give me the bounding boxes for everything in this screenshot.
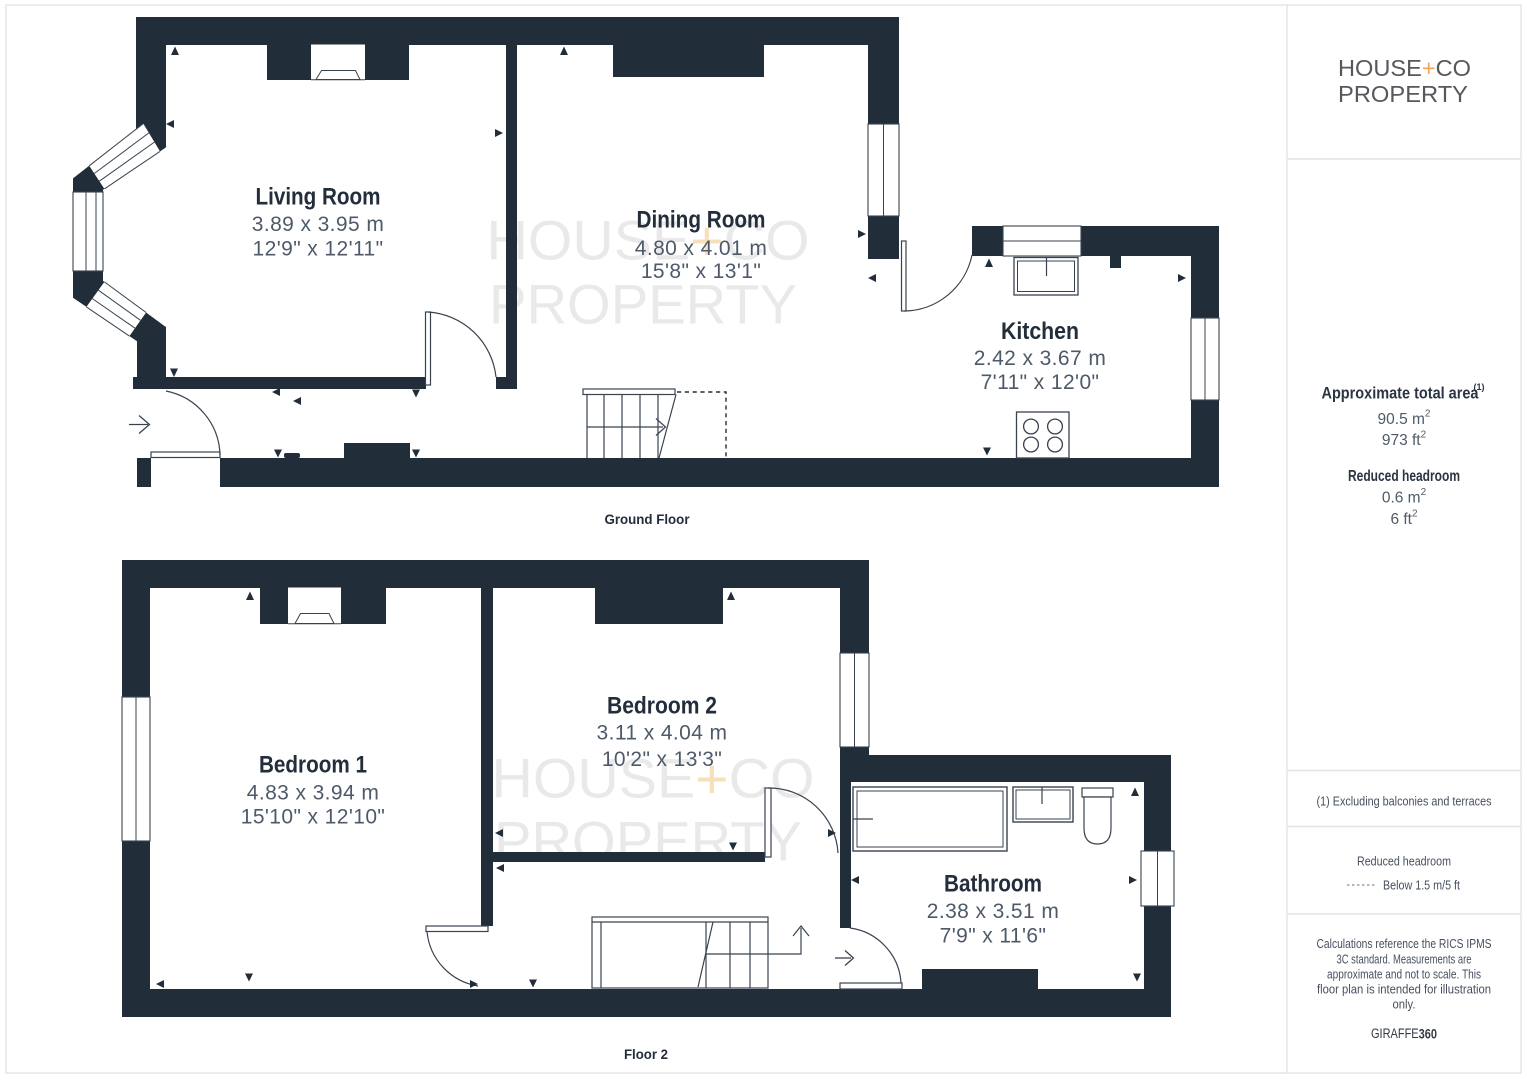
svg-text:GIRAFFE360: GIRAFFE360: [1371, 1026, 1437, 1041]
svg-text:90.5 m2: 90.5 m2: [1378, 408, 1431, 428]
svg-text:10'2" x 13'3": 10'2" x 13'3": [602, 748, 722, 771]
svg-text:HOUSE+CO: HOUSE+CO: [1338, 55, 1471, 81]
svg-text:Reduced headroom: Reduced headroom: [1357, 854, 1451, 869]
svg-text:PROPERTY: PROPERTY: [1338, 81, 1468, 107]
svg-text:Calculations reference the RIC: Calculations reference the RICS IPMS: [1317, 937, 1492, 951]
svg-text:Living Room: Living Room: [256, 184, 381, 211]
svg-text:4.80 x 4.01 m: 4.80 x 4.01 m: [635, 237, 767, 260]
svg-text:3.11 x 4.04 m: 3.11 x 4.04 m: [597, 722, 728, 745]
svg-text:only.: only.: [1393, 998, 1416, 1012]
svg-text:3C standard. Measurements are: 3C standard. Measurements are: [1337, 953, 1472, 967]
svg-text:15'8" x 13'1": 15'8" x 13'1": [641, 260, 761, 283]
svg-text:approximate and not to scale.: approximate and not to scale. This: [1327, 968, 1481, 982]
svg-text:PROPERTY: PROPERTY: [494, 810, 802, 873]
svg-text:12'9" x 12'11": 12'9" x 12'11": [253, 238, 384, 261]
svg-text:Bedroom 2: Bedroom 2: [607, 693, 717, 720]
svg-text:Below 1.5 m/5 ft: Below 1.5 m/5 ft: [1383, 878, 1460, 893]
svg-text:2.42 x 3.67 m: 2.42 x 3.67 m: [974, 347, 1106, 370]
svg-text:Dining Room: Dining Room: [637, 207, 766, 234]
svg-text:Floor 2: Floor 2: [624, 1046, 668, 1062]
svg-text:Bathroom: Bathroom: [944, 871, 1042, 898]
svg-text:floor plan is intended for ill: floor plan is intended for illustration: [1317, 983, 1491, 997]
svg-text:0.6 m2: 0.6 m2: [1382, 487, 1427, 507]
svg-text:6 ft2: 6 ft2: [1390, 508, 1418, 528]
svg-text:973 ft2: 973 ft2: [1382, 429, 1427, 449]
svg-text:15'10" x 12'10": 15'10" x 12'10": [241, 806, 386, 829]
svg-text:4.83 x 3.94 m: 4.83 x 3.94 m: [247, 782, 379, 805]
svg-text:Kitchen: Kitchen: [1001, 318, 1079, 345]
svg-text:(1): (1): [1474, 382, 1485, 392]
svg-text:7'9" x 11'6": 7'9" x 11'6": [940, 925, 1047, 948]
svg-text:(1) Excluding balconies and te: (1) Excluding balconies and terraces: [1317, 795, 1492, 809]
svg-text:Bedroom 1: Bedroom 1: [259, 752, 367, 779]
svg-text:Ground Floor: Ground Floor: [605, 511, 691, 527]
svg-text:2.38 x 3.51 m: 2.38 x 3.51 m: [927, 900, 1059, 923]
svg-text:7'11" x 12'0": 7'11" x 12'0": [981, 371, 1100, 394]
svg-text:3.89 x 3.95 m: 3.89 x 3.95 m: [252, 213, 384, 236]
svg-text:Approximate total area: Approximate total area: [1322, 384, 1479, 403]
svg-text:Reduced headroom: Reduced headroom: [1348, 468, 1460, 485]
